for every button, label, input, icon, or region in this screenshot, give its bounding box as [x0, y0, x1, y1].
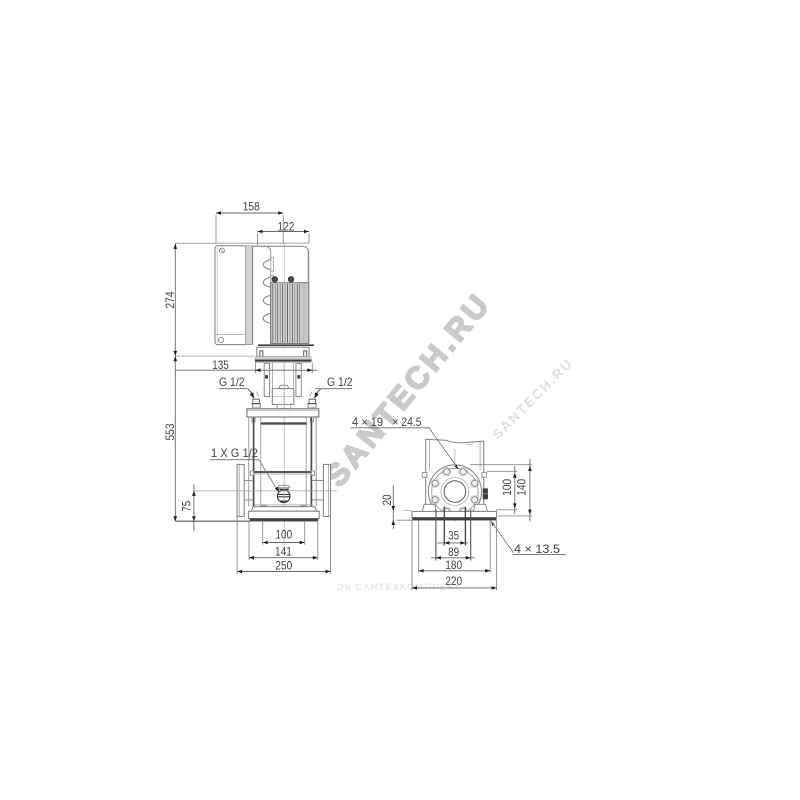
svg-text:122: 122 [278, 219, 295, 233]
svg-text:4 × 19: 4 × 19 [352, 415, 383, 429]
svg-text:220: 220 [445, 574, 462, 588]
svg-text:20: 20 [380, 494, 394, 505]
svg-text:158: 158 [243, 199, 261, 213]
svg-text:× 24.5: × 24.5 [393, 415, 422, 429]
svg-text:250: 250 [275, 559, 292, 573]
svg-text:135: 135 [212, 358, 229, 372]
svg-text:G 1/2: G 1/2 [327, 375, 353, 389]
svg-text:G 1/2: G 1/2 [219, 375, 245, 389]
svg-text:75: 75 [180, 501, 194, 512]
svg-text:89: 89 [448, 545, 459, 559]
svg-text:274: 274 [163, 291, 177, 308]
svg-text:180: 180 [445, 558, 462, 572]
svg-text:553: 553 [163, 423, 177, 440]
svg-text:100: 100 [500, 479, 514, 496]
svg-text:1 X G 1/2: 1 X G 1/2 [211, 446, 258, 460]
svg-text:4 × 13.5: 4 × 13.5 [514, 542, 560, 556]
svg-text:140: 140 [515, 479, 529, 496]
svg-text:100: 100 [275, 528, 292, 542]
svg-text:35: 35 [448, 529, 459, 543]
svg-text:141: 141 [275, 545, 292, 559]
